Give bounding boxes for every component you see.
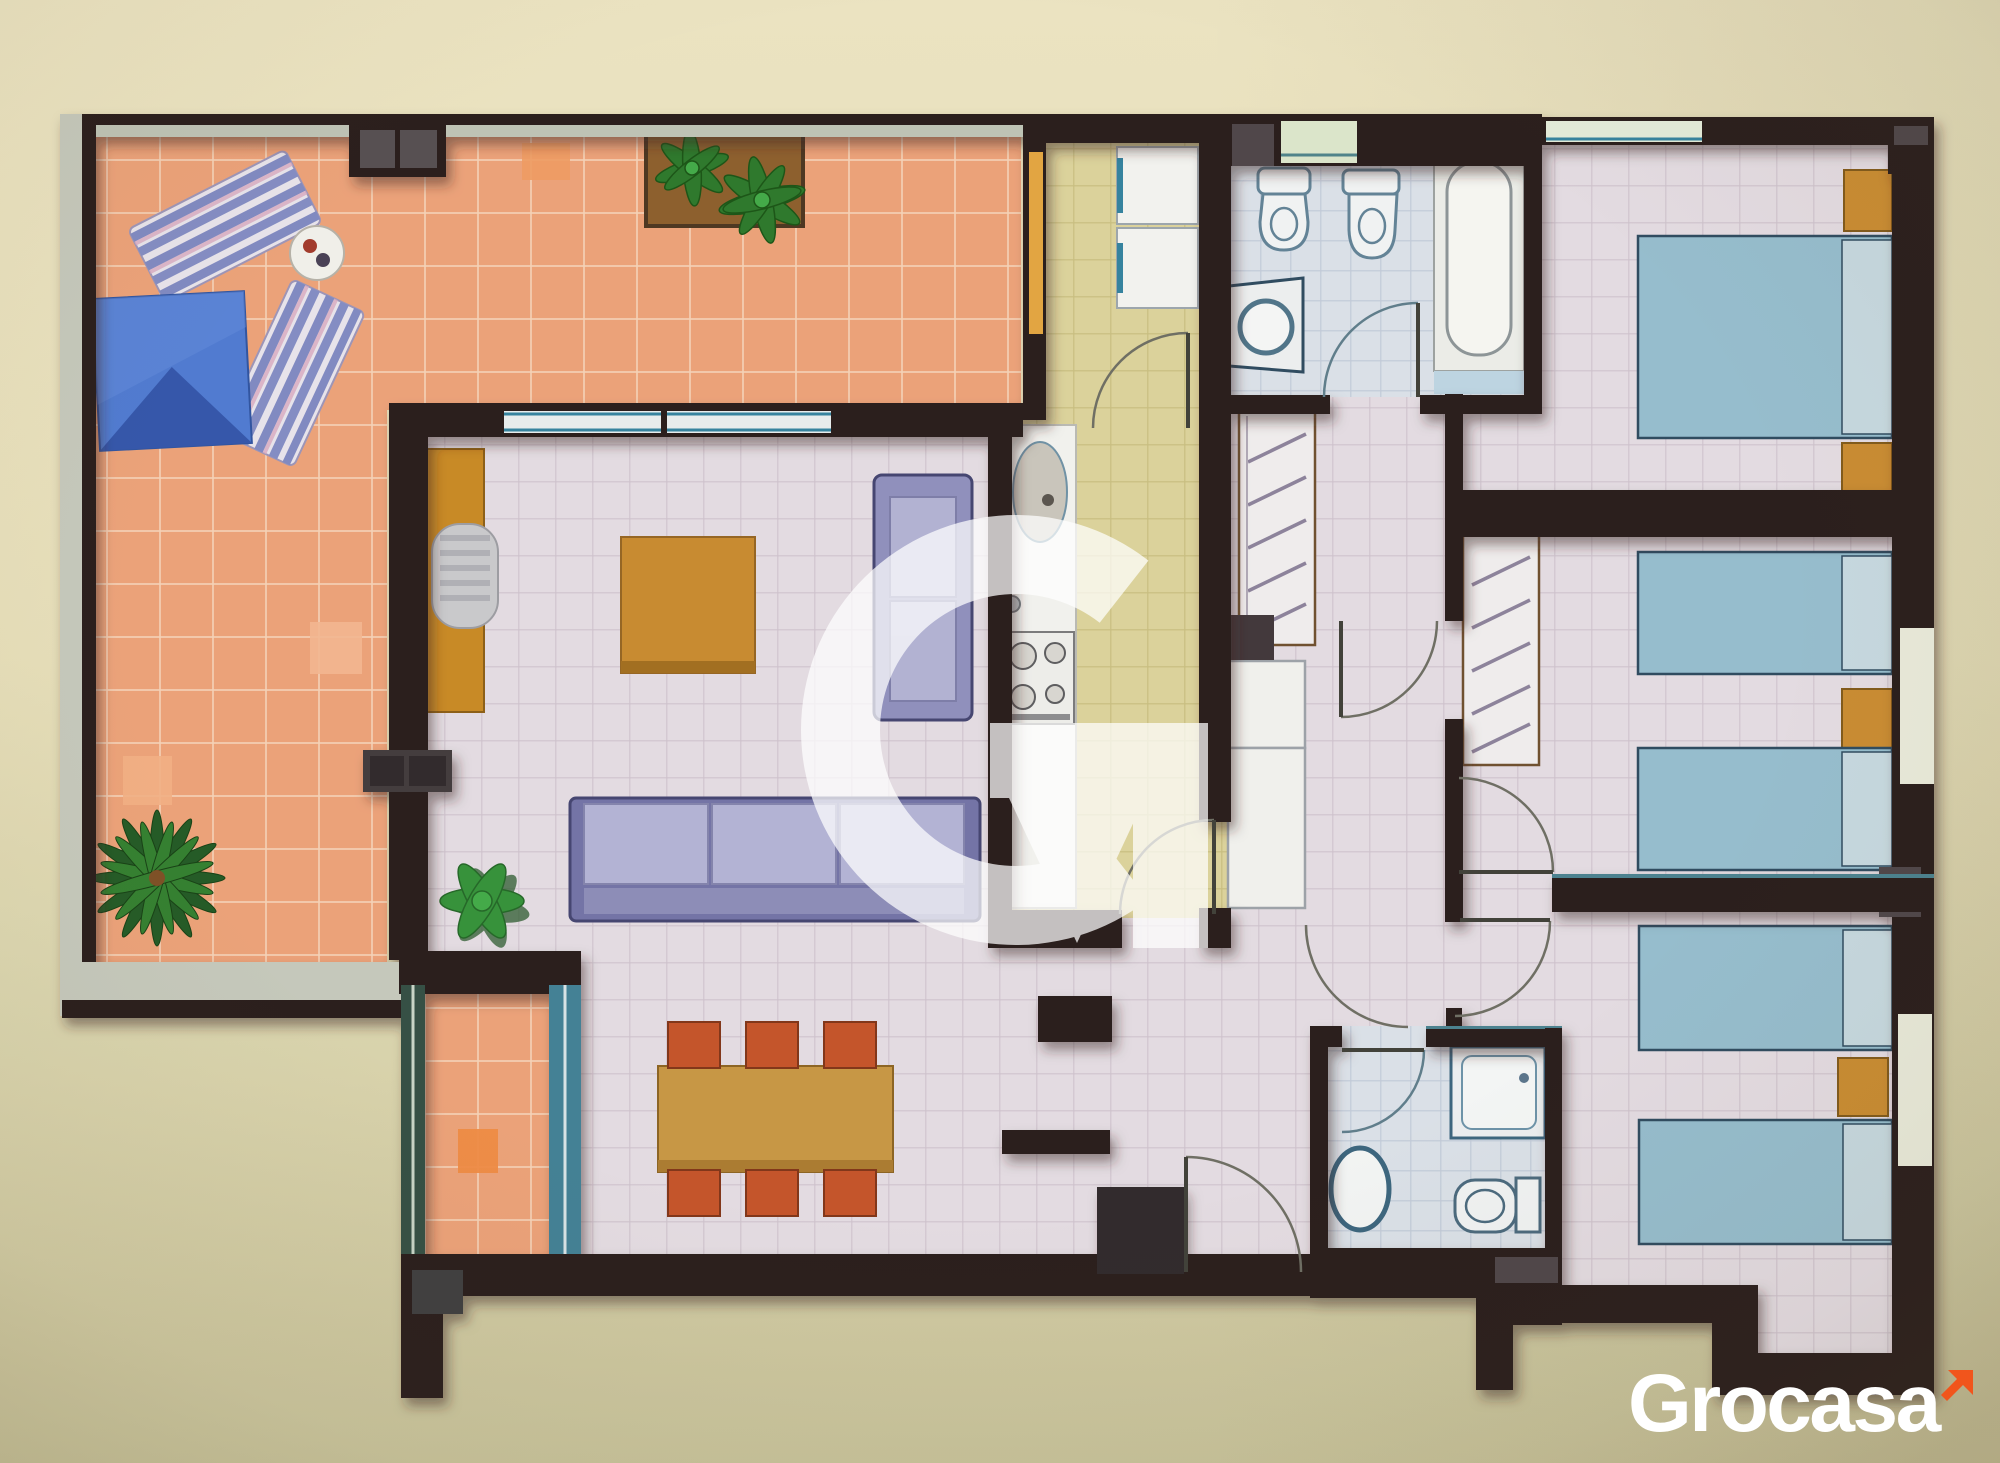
svg-text:Grocasa: Grocasa: [1628, 1358, 1943, 1449]
